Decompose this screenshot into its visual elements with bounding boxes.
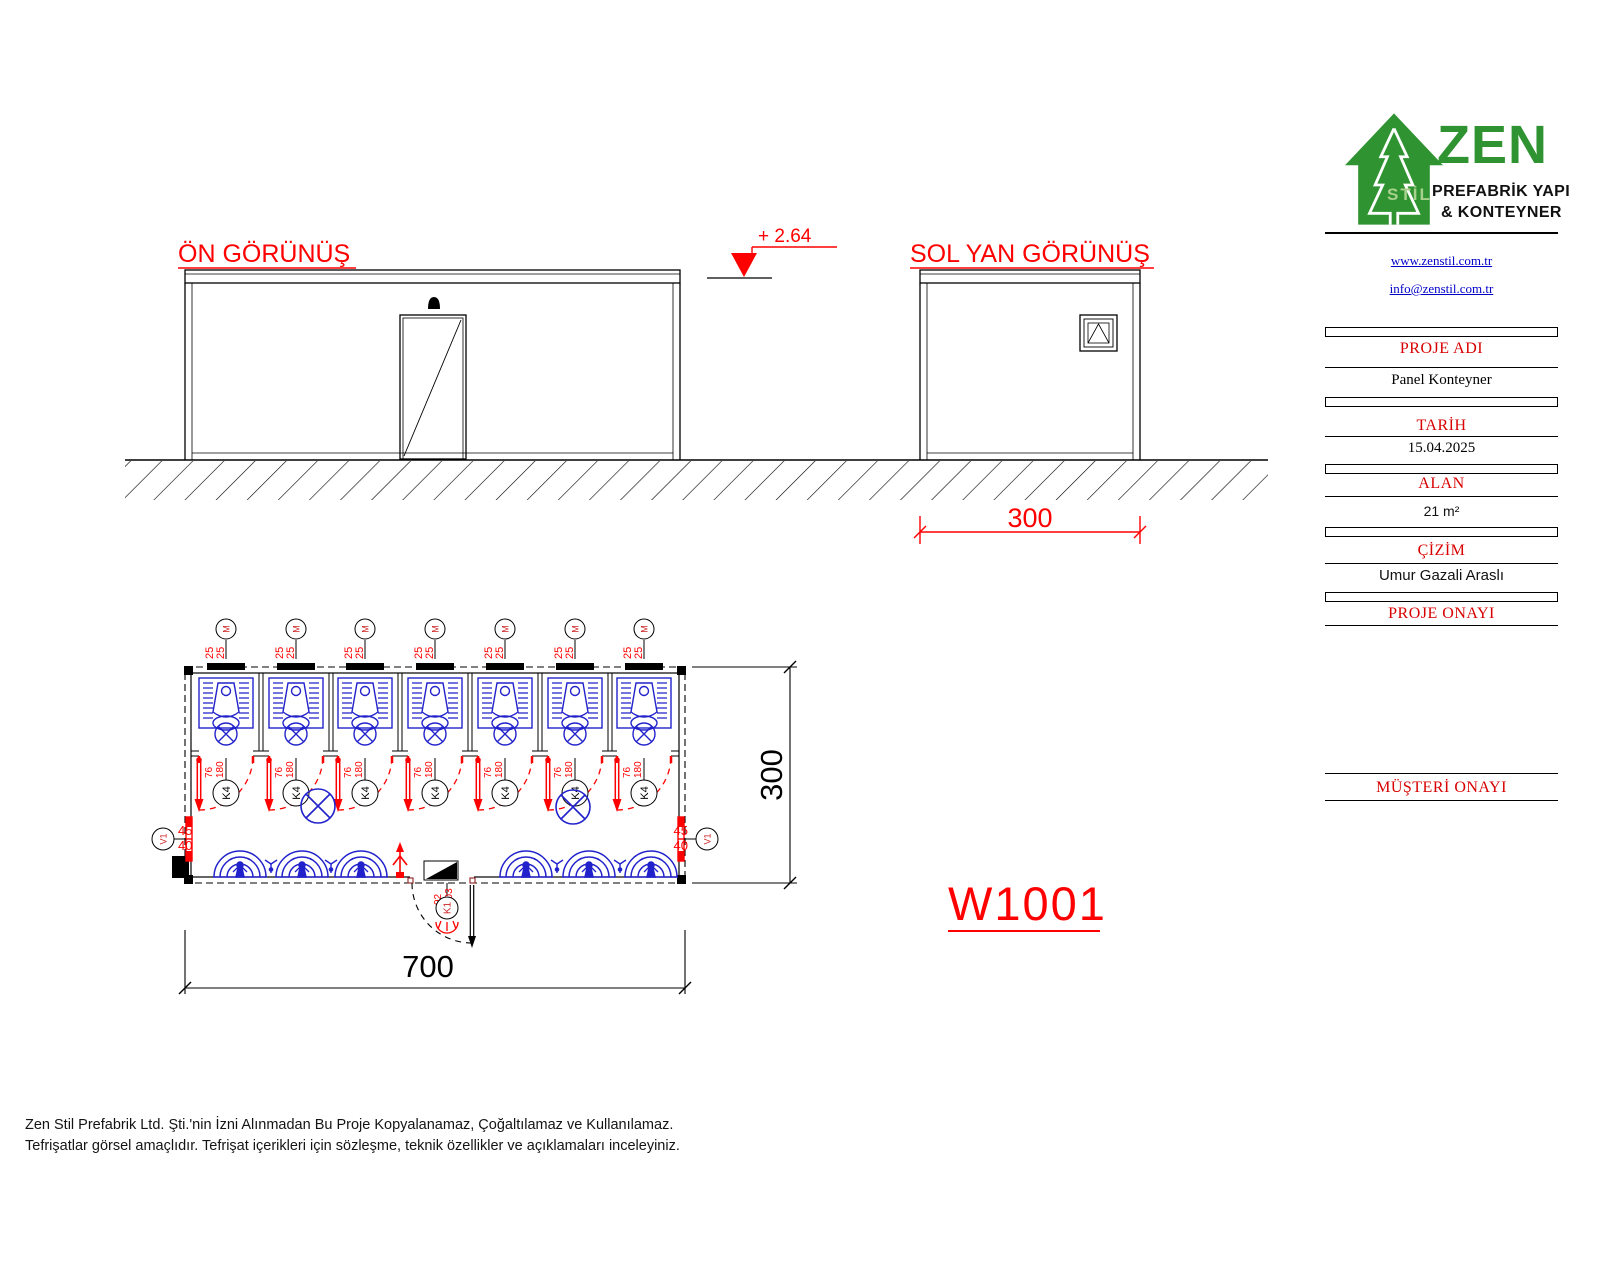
divider — [1325, 625, 1558, 626]
cizim-label: ÇİZİM — [1325, 542, 1558, 560]
window-width-right: 45 — [674, 823, 688, 838]
spacer-bar — [1325, 464, 1558, 474]
disclaimer-line2: Tefrişatlar görsel amaçlıdır. Tefrişat i… — [25, 1138, 680, 1154]
proje-onayi-label: PROJE ONAYI — [1325, 605, 1558, 623]
musteri-onayi-label: MÜŞTERİ ONAYI — [1325, 779, 1558, 797]
proje-adi-value: Panel Konteyner — [1325, 372, 1558, 389]
side-width-dimension: 300 — [914, 503, 1146, 544]
vent-window-right: V1 45 40 — [674, 817, 718, 861]
alan-value: 21 m² — [1325, 503, 1558, 519]
stall-door-label — [204, 758, 239, 806]
vent-unit — [204, 619, 245, 670]
window-tag-right: V1 — [703, 833, 713, 844]
divider — [1325, 800, 1558, 801]
squat-toilet-icon — [199, 678, 253, 745]
plan-depth-dimension: 300 — [692, 661, 797, 889]
window-tag: V1 — [159, 833, 169, 844]
divider — [1325, 773, 1558, 774]
main-door: 92 203 K1 — [408, 878, 476, 948]
front-view-title: ÖN GÖRÜNÜŞ — [178, 240, 350, 268]
divider — [1325, 563, 1558, 564]
window-width: 45 — [178, 823, 192, 838]
proje-adi-label: PROJE ADI — [1325, 340, 1558, 358]
cizim-value: Umur Gazali Araslı — [1325, 567, 1558, 584]
brand-line2: & KONTEYNER — [1441, 205, 1562, 221]
zenstil-logo-icon — [1345, 110, 1443, 228]
divider — [1325, 436, 1558, 437]
level-mark: + 2.64 — [707, 226, 837, 278]
drawing-sheet: M 25 25 K4 76 180 — [0, 0, 1600, 1280]
divider — [1325, 496, 1558, 497]
tarih-label: TARİH — [1325, 417, 1558, 435]
tarih-value: 15.04.2025 — [1325, 440, 1558, 457]
window-height-right: 40 — [674, 838, 688, 853]
door-closer-icon — [428, 297, 440, 309]
side-width-value: 300 — [1007, 503, 1052, 533]
spacer-bar — [1325, 327, 1558, 337]
side-elevation: SOL YAN GÖRÜNÜŞ — [910, 240, 1154, 460]
spacer-bar — [1325, 527, 1558, 537]
tap-icon — [265, 860, 277, 873]
disclaimer-line1: Zen Stil Prefabrik Ltd. Şti.'nin İzni Al… — [25, 1117, 673, 1133]
step-panel-icon — [424, 861, 458, 880]
vent-window-left: V1 45 40 — [152, 817, 194, 861]
front-door — [400, 297, 466, 459]
aspirator-icon — [393, 842, 407, 878]
email-link[interactable]: info@zenstil.com.tr — [1325, 281, 1558, 297]
floor-plan: 92 203 K1 V1 45 40 — [152, 619, 718, 948]
washbasin-icon — [213, 851, 267, 877]
divider — [1325, 367, 1558, 368]
ceiling-light-icon — [301, 789, 335, 823]
plan-width-value: 700 — [402, 949, 454, 984]
level-value: + 2.64 — [758, 226, 812, 247]
ground-hatch — [125, 460, 1268, 500]
side-view-title: SOL YAN GÖRÜNÜŞ — [910, 240, 1150, 268]
alan-label: ALAN — [1325, 475, 1558, 493]
side-window — [1080, 315, 1117, 351]
stall-partitions — [259, 673, 612, 751]
main-door-tag: K1 — [443, 901, 454, 914]
brand-stil: STİL — [1387, 186, 1432, 203]
spacer-bar — [1325, 397, 1558, 407]
wall-lamp-icon — [436, 921, 458, 933]
front-elevation: ÖN GÖRÜNÜŞ — [178, 240, 680, 460]
brand-zen: ZEN — [1437, 118, 1548, 172]
technical-drawing-canvas: M 25 25 K4 76 180 — [0, 0, 1320, 1280]
website-link[interactable]: www.zenstil.com.tr — [1325, 253, 1558, 269]
plan-width-dimension: 700 — [179, 930, 691, 994]
brand-line1: PREFABRİK YAPI — [1432, 184, 1570, 200]
spacer-bar — [1325, 592, 1558, 602]
window-height: 40 — [178, 838, 192, 853]
plan-depth-value: 300 — [754, 749, 789, 801]
drawing-number: W1001 — [948, 877, 1107, 931]
level-triangle-icon — [731, 253, 757, 277]
drawing-number-value: W1001 — [948, 877, 1107, 930]
divider — [1325, 232, 1558, 234]
